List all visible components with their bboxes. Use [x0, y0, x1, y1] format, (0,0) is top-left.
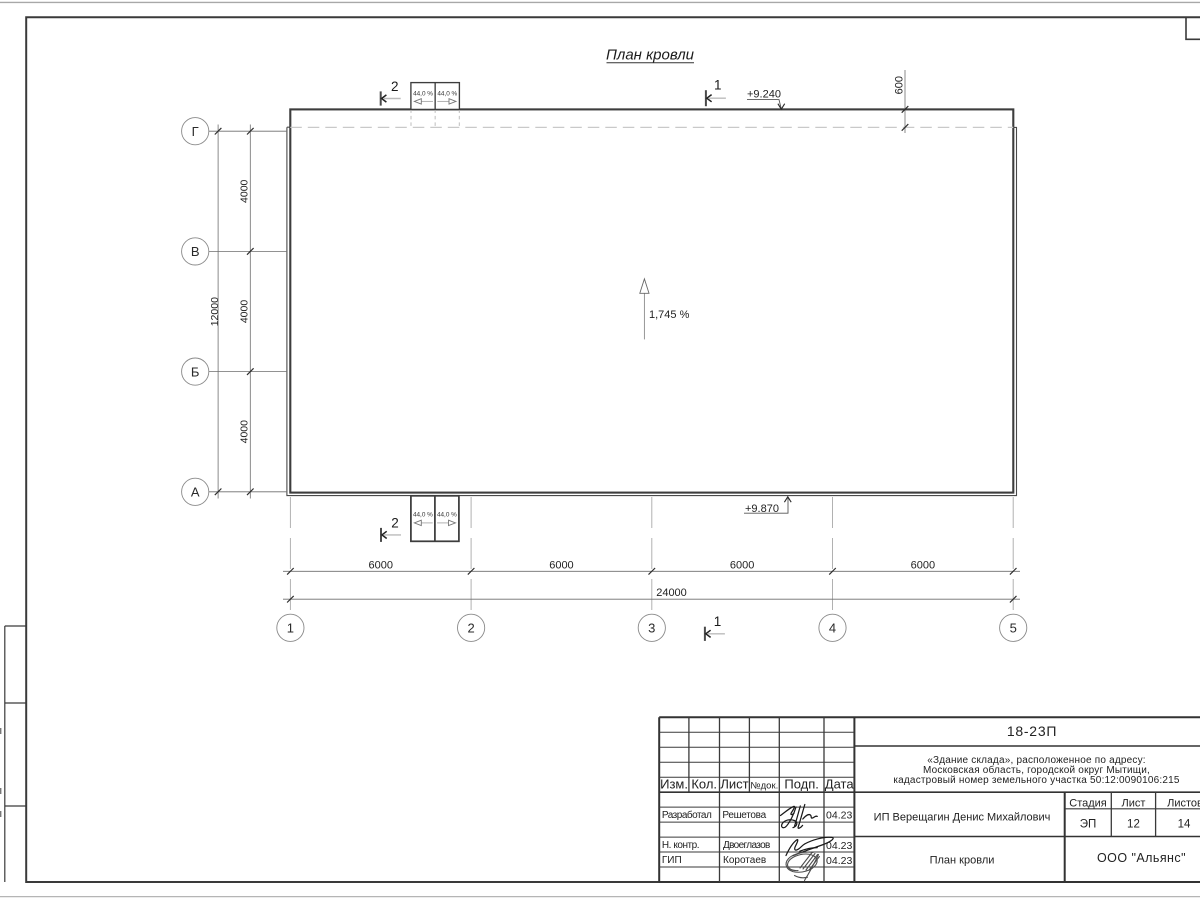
svg-text:14: 14	[1178, 819, 1191, 831]
svg-text:4000: 4000	[238, 420, 250, 444]
svg-text:Листов: Листов	[1167, 797, 1200, 809]
svg-text:18-23П: 18-23П	[1007, 723, 1057, 739]
svg-text:04.23: 04.23	[826, 810, 852, 822]
svg-text:№док.: №док.	[750, 781, 778, 792]
svg-text:1: 1	[714, 78, 722, 93]
svg-text:6000: 6000	[730, 559, 754, 571]
svg-text:1: 1	[714, 614, 722, 629]
svg-text:12: 12	[1127, 819, 1140, 831]
svg-text:44,0 %: 44,0 %	[413, 91, 433, 98]
svg-text:44,0 %: 44,0 %	[413, 512, 433, 519]
svg-text:12000: 12000	[209, 297, 221, 326]
svg-text:24000: 24000	[656, 587, 687, 599]
svg-text:Б: Б	[191, 364, 200, 379]
svg-text:Двоеглазов: Двоеглазов	[723, 840, 770, 851]
svg-text:ИП Верещагин Денис Михайлович: ИП Верещагин Денис Михайлович	[874, 811, 1051, 823]
svg-text:4000: 4000	[238, 179, 250, 203]
svg-text:4000: 4000	[238, 300, 250, 324]
svg-text:6000: 6000	[369, 559, 393, 571]
svg-text:А: А	[191, 485, 200, 500]
svg-text:Подп.: Подп.	[784, 777, 819, 792]
svg-text:3: 3	[648, 621, 655, 636]
svg-text:+9.240: +9.240	[747, 89, 781, 101]
svg-text:2: 2	[391, 79, 399, 94]
svg-text:6000: 6000	[911, 559, 935, 571]
svg-text:6000: 6000	[549, 559, 573, 571]
svg-text:Лист: Лист	[1121, 797, 1145, 809]
svg-text:Н. контр.: Н. контр.	[662, 840, 699, 851]
svg-text:В: В	[191, 244, 200, 259]
svg-text:Кол.: Кол.	[691, 777, 717, 792]
svg-text:Стадия: Стадия	[1069, 797, 1107, 809]
svg-text:1: 1	[287, 621, 294, 636]
svg-text:Лист: Лист	[720, 777, 748, 792]
svg-text:ООО "Альянс": ООО "Альянс"	[1097, 851, 1186, 865]
svg-text:Коротаев: Коротаев	[723, 855, 766, 866]
svg-text:Решетова: Решетова	[722, 810, 766, 821]
svg-text:44,0 %: 44,0 %	[437, 91, 457, 98]
svg-text:План кровли: План кровли	[606, 47, 695, 64]
svg-text:Разработал: Разработал	[662, 809, 712, 821]
svg-text:600: 600	[894, 76, 906, 94]
svg-text:ГИП: ГИП	[662, 855, 682, 866]
svg-text:2: 2	[391, 515, 399, 530]
svg-text:Г: Г	[192, 124, 199, 139]
svg-text:4: 4	[829, 621, 836, 636]
svg-text:5: 5	[1010, 621, 1017, 636]
svg-text:кадастровый номер земельного у: кадастровый номер земельного участка 50:…	[893, 775, 1180, 786]
svg-text:Изм.: Изм.	[660, 777, 688, 792]
svg-text:ЭП: ЭП	[1080, 819, 1097, 831]
svg-text:Дата: Дата	[825, 777, 855, 792]
svg-text:2: 2	[467, 621, 474, 636]
svg-text:04.23: 04.23	[826, 855, 852, 867]
svg-text:44,0 %: 44,0 %	[437, 512, 457, 519]
svg-text:1,745 %: 1,745 %	[649, 309, 690, 321]
svg-text:План кровли: План кровли	[930, 854, 995, 866]
